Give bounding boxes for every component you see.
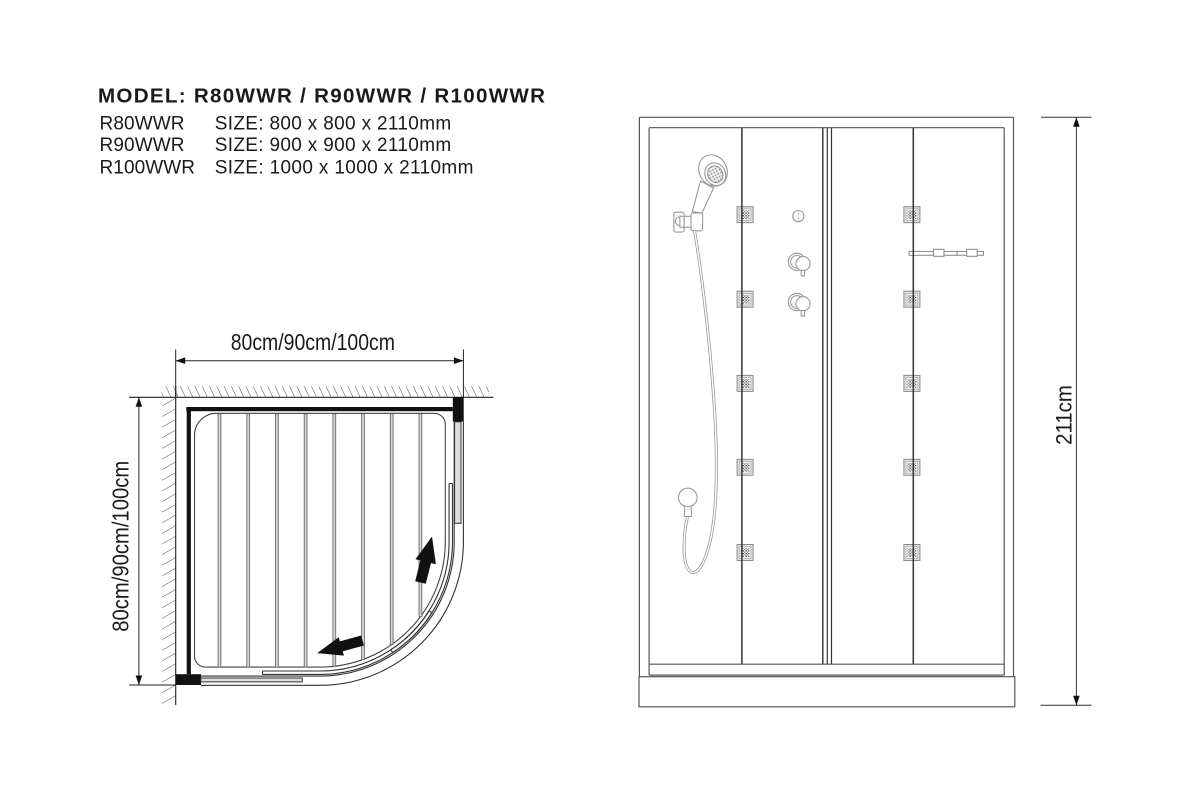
svg-text:SIZE: 900 x 900 x 2110mm: SIZE: 900 x 900 x 2110mm <box>215 135 452 156</box>
svg-text:SIZE: 1000 x 1000 x 2110mm: SIZE: 1000 x 1000 x 2110mm <box>215 157 474 178</box>
svg-text:R100WWR: R100WWR <box>100 157 196 178</box>
svg-text:211cm: 211cm <box>1052 385 1077 445</box>
svg-text:MODEL: R80WWR / R90WWR / R100W: MODEL: R80WWR / R90WWR / R100WWR <box>98 84 545 107</box>
svg-text:R90WWR: R90WWR <box>100 135 185 156</box>
svg-text:SIZE: 800 x 800 x 2110mm: SIZE: 800 x 800 x 2110mm <box>215 114 452 135</box>
svg-text:80cm/90cm/100cm: 80cm/90cm/100cm <box>107 461 133 632</box>
svg-text:R80WWR: R80WWR <box>100 114 185 135</box>
svg-text:80cm/90cm/100cm: 80cm/90cm/100cm <box>231 329 395 355</box>
